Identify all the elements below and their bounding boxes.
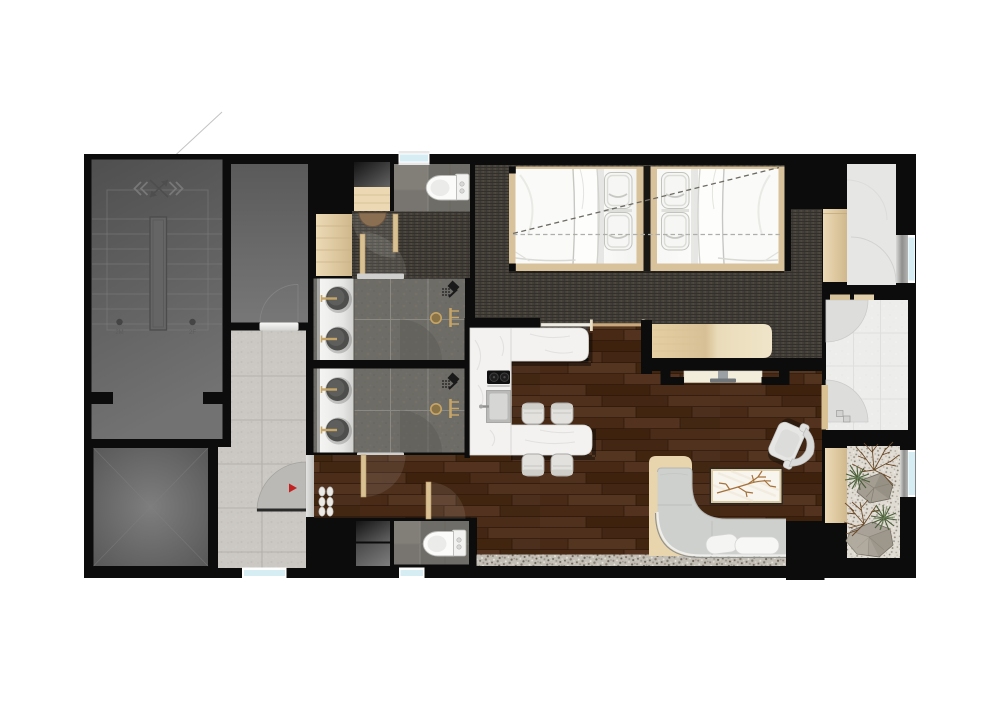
- svg-text:2M: 2M: [115, 330, 123, 336]
- svg-text:2F: 2F: [189, 330, 196, 336]
